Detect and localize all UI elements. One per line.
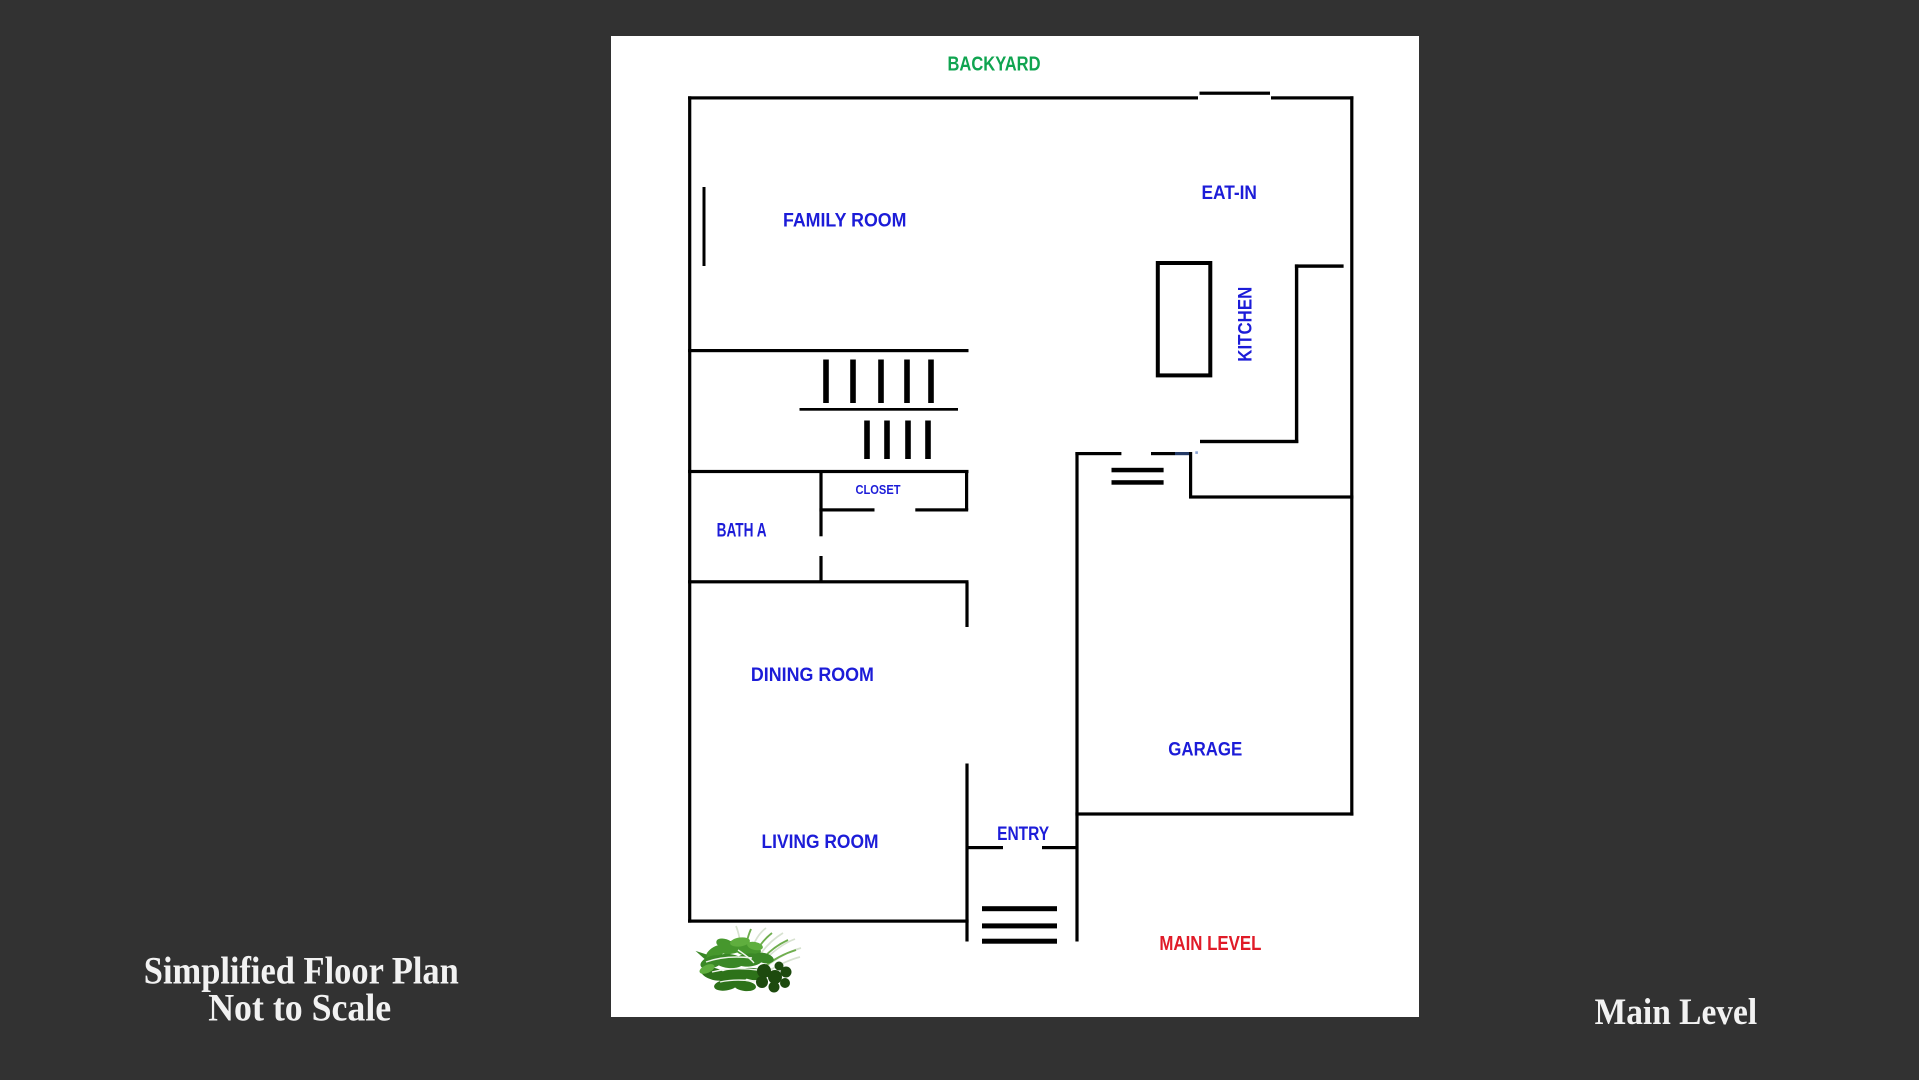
svg-text:Not to Scale: Not to Scale bbox=[208, 987, 391, 1030]
svg-text:KITCHEN: KITCHEN bbox=[1235, 287, 1256, 362]
svg-text:EAT-IN: EAT-IN bbox=[1201, 183, 1257, 204]
svg-text:CLOSET: CLOSET bbox=[856, 482, 901, 497]
svg-text:Main Level: Main Level bbox=[1595, 992, 1758, 1033]
svg-text:LIVING ROOM: LIVING ROOM bbox=[762, 832, 879, 853]
svg-text:GARAGE: GARAGE bbox=[1168, 740, 1242, 761]
svg-text:DINING ROOM: DINING ROOM bbox=[751, 665, 874, 686]
svg-text:MAIN LEVEL: MAIN LEVEL bbox=[1159, 932, 1261, 955]
svg-text:BACKYARD: BACKYARD bbox=[948, 54, 1041, 76]
svg-text:FAMILY ROOM: FAMILY ROOM bbox=[783, 211, 907, 232]
svg-text:BATH A: BATH A bbox=[717, 521, 767, 542]
svg-text:ENTRY: ENTRY bbox=[997, 823, 1049, 845]
